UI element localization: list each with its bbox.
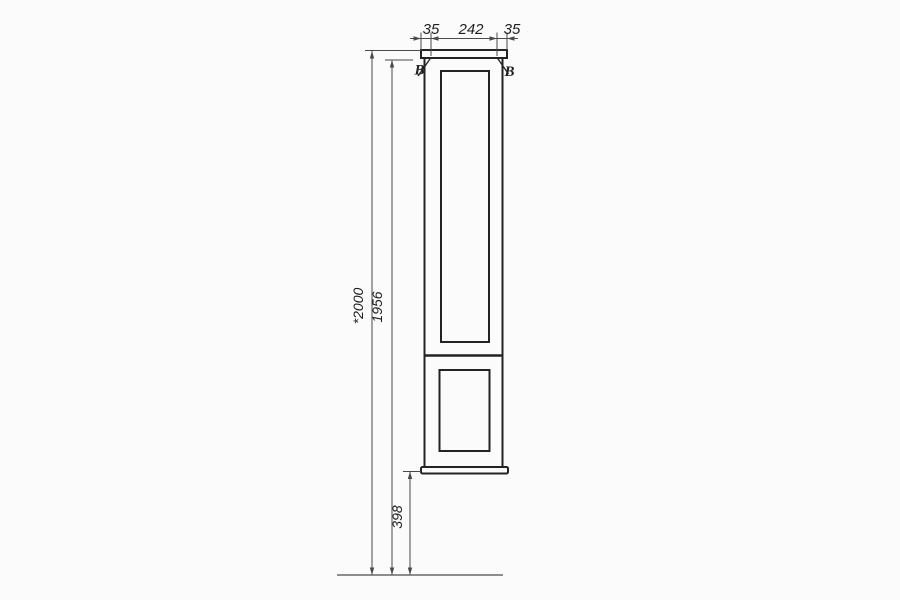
- upper-door-panel: [441, 71, 489, 342]
- arrowhead: [370, 568, 374, 576]
- cabinet-outline: [418, 50, 509, 474]
- arrowhead: [390, 568, 394, 576]
- lower-door-panel: [440, 370, 490, 451]
- dim-overall-height-label: *2000: [350, 287, 366, 324]
- plinth-base: [421, 467, 508, 474]
- arrowhead: [408, 568, 412, 576]
- dim-base-clearance-label: 398: [389, 505, 405, 529]
- drawing-canvas: 35 242 35 В В *2000 1956 398: [0, 0, 900, 600]
- section-marker-right-label: В: [503, 64, 514, 80]
- base-clearance-dimension: 398: [389, 472, 421, 576]
- arrowhead: [408, 472, 412, 480]
- section-marker-left-label: В: [413, 63, 424, 79]
- dim-35-right-label: 35: [504, 21, 521, 38]
- arrowhead: [390, 60, 394, 68]
- dim-carcass-height-label: 1956: [369, 291, 385, 322]
- dim-35-left-label: 35: [423, 21, 440, 38]
- cornice-top-board: [421, 50, 507, 58]
- arrowhead: [370, 51, 374, 59]
- cabinet-body: [425, 58, 503, 467]
- arrowhead: [490, 36, 498, 40]
- carcass-height-dimension: 1956: [369, 60, 413, 575]
- technical-drawing: 35 242 35 В В *2000 1956 398: [0, 0, 900, 600]
- arrowhead: [414, 36, 422, 40]
- dim-242-label: 242: [457, 21, 484, 38]
